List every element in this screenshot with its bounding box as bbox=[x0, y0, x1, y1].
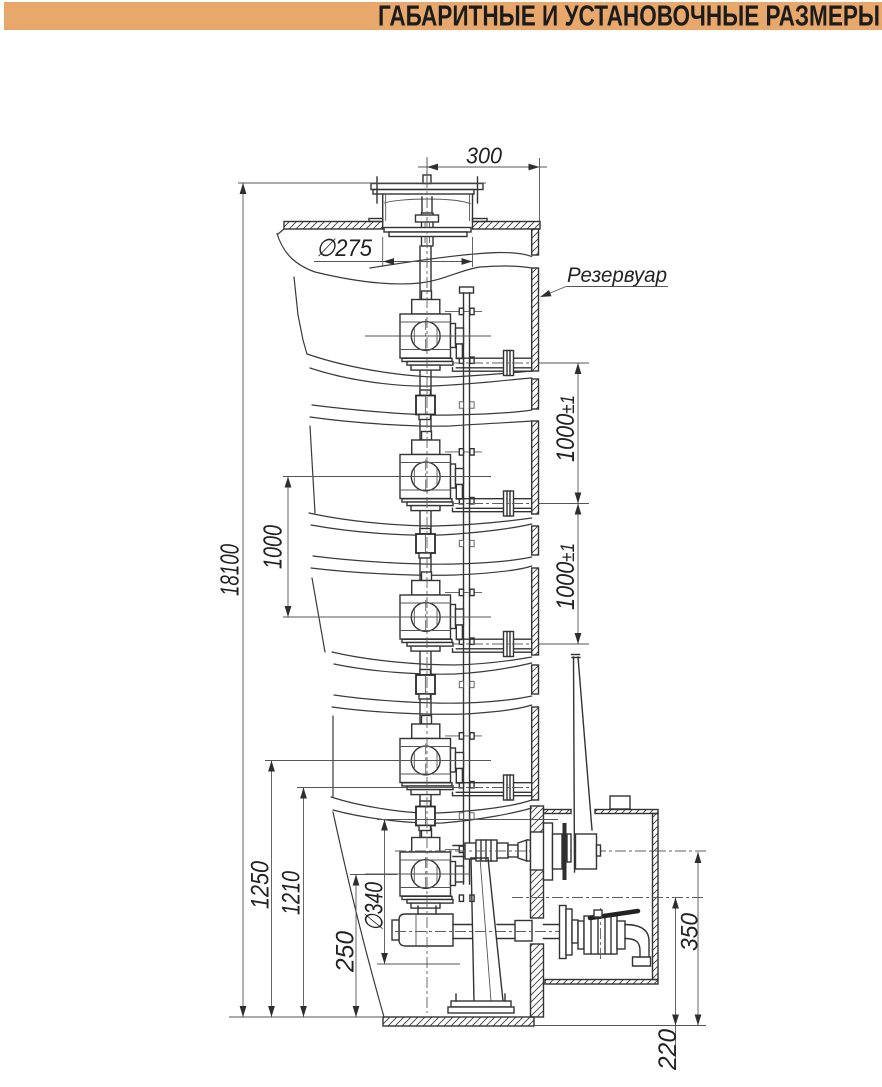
svg-text:220: 220 bbox=[654, 1029, 682, 1071]
svg-text:Резервуар: Резервуар bbox=[567, 264, 667, 287]
svg-text:350: 350 bbox=[677, 912, 704, 951]
svg-text:1000±1: 1000±1 bbox=[552, 395, 580, 462]
svg-text:1250: 1250 bbox=[247, 861, 275, 909]
svg-text:1210: 1210 bbox=[278, 871, 306, 915]
svg-text:1000: 1000 bbox=[258, 525, 288, 569]
svg-text:250: 250 bbox=[332, 931, 360, 973]
svg-text:1000±1: 1000±1 bbox=[552, 543, 580, 610]
svg-text:∅340: ∅340 bbox=[361, 882, 389, 931]
svg-text:18100: 18100 bbox=[215, 544, 245, 596]
svg-text:∅275: ∅275 bbox=[316, 235, 372, 262]
svg-text:300: 300 bbox=[466, 143, 502, 169]
svg-text:ГАБАРИТНЫЕ И УСТАНОВОЧНЫЕ РАЗМ: ГАБАРИТНЫЕ И УСТАНОВОЧНЫЕ РАЗМЕРЫ bbox=[378, 1, 880, 33]
